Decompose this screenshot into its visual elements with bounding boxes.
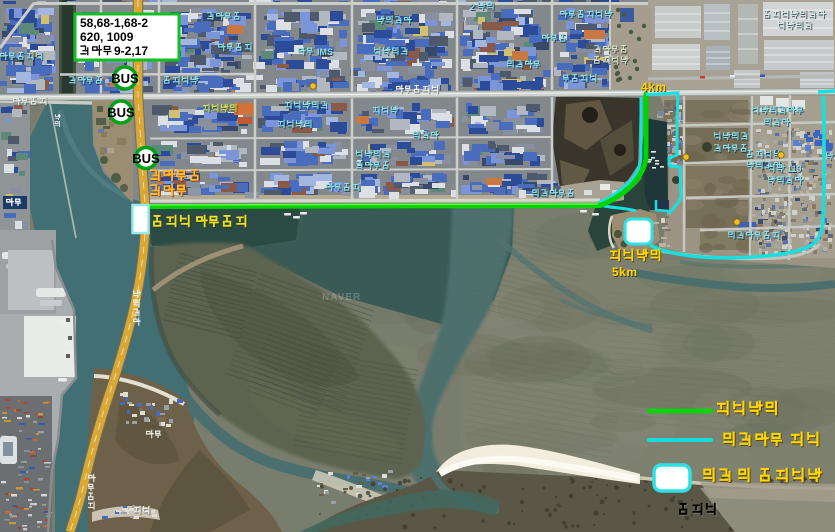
svg-text:4km: 4km (641, 80, 667, 94)
svg-text:620, 1009: 620, 1009 (80, 30, 134, 44)
svg-text:119: 119 (787, 164, 802, 174)
svg-text:IMS: IMS (317, 47, 333, 57)
svg-text:BUS: BUS (132, 151, 160, 166)
svg-text:BUS: BUS (111, 71, 139, 86)
svg-text:9-2,17: 9-2,17 (114, 44, 148, 58)
svg-text:5km: 5km (612, 265, 638, 279)
svg-text:NAVER: NAVER (322, 292, 361, 303)
svg-text:58,68-1,68-2: 58,68-1,68-2 (80, 16, 148, 30)
svg-text:BUS: BUS (107, 105, 135, 120)
svg-text:2: 2 (470, 2, 475, 12)
